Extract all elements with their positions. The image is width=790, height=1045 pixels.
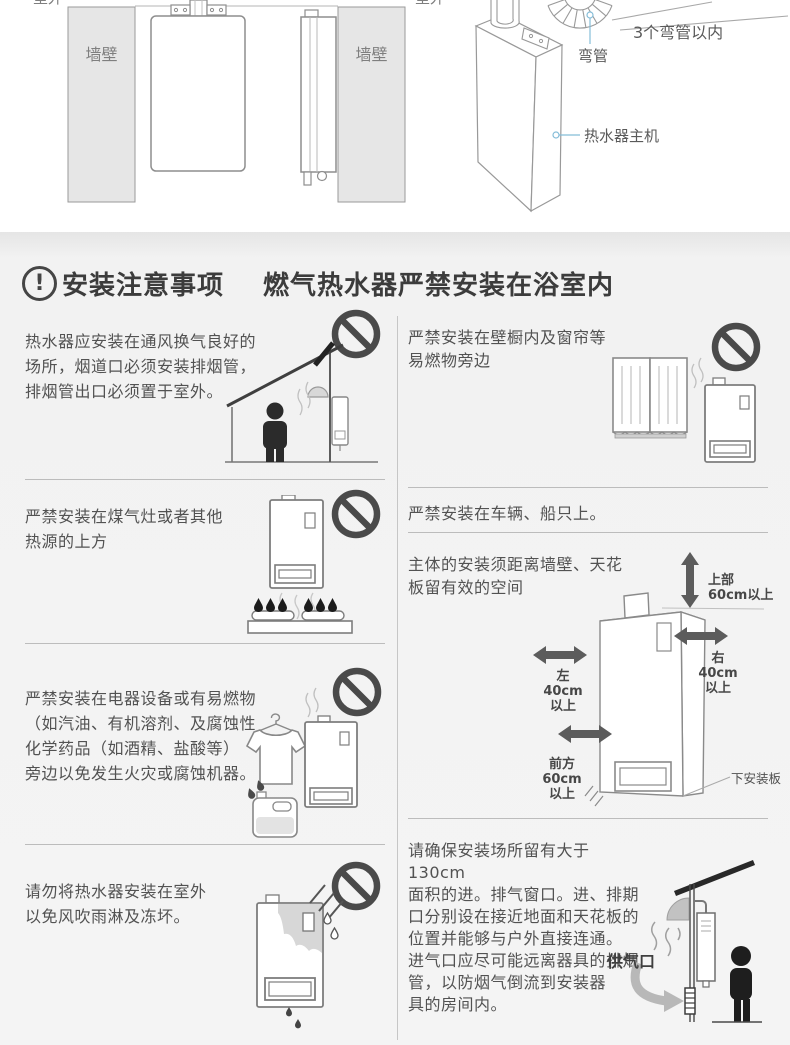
heat-waves [306,688,318,717]
precaution-text-stove: 严禁安装在煤气灶或者其他 热源的上方 [25,504,270,554]
outdoor-vent-illustration [600,835,790,1045]
outdoor-label-right: 室外 [415,0,445,7]
alert-glyph: ! [34,271,44,296]
divider-left-1 [25,479,385,480]
heater-front-view [151,0,245,171]
flue-pipe [694,901,706,913]
precaution-text-outdoor: 请勿将热水器安装在室外 以免风吹雨淋及冻坏。 [25,879,270,929]
arrow-left [533,646,587,664]
exhaust-dome [667,898,689,920]
stove-illustration [240,495,390,645]
notice-title: 安装注意事项 [62,265,224,302]
heat-waves [692,358,703,388]
precaution-text-flammables: 严禁安装在电器设备或有易燃物 （如汽油、有机溶剂、及腐蚀性 化学药品（如酒精、盐… [25,686,270,786]
wall-heater [332,397,348,451]
curtains [613,358,687,438]
precaution-text-vehicle: 严禁安装在车辆、船只上。 [408,502,648,525]
gas-stove [248,598,352,633]
drip-drops [286,1007,301,1028]
exhaust-dome [308,387,328,397]
roof [674,860,755,896]
person-silhouette [730,946,752,1022]
fuel-can [253,792,297,837]
heater [305,716,357,807]
t-shirt [247,730,305,784]
main-unit-label: 热水器主机 [584,127,659,145]
wall-side-view [338,7,405,202]
clearance-top-label: 上部 60cm以上 [708,573,773,603]
flue-cylinder [491,0,519,28]
heater [705,378,755,462]
heater [270,495,323,588]
heater-3d-box [600,593,705,796]
wall-label-front: 墙壁 [68,46,135,63]
bend-pipe-label: 弯管 [566,47,620,65]
alert-exclamation-circle-icon: ! [22,266,57,301]
house-vent-illustration [225,315,390,475]
curtain-illustration [600,320,770,480]
rain-illustration [240,855,390,1045]
ceiling-reference-line [662,608,764,609]
wall-label-side: 墙壁 [338,46,405,63]
heater-side-view [301,10,336,185]
page: 室外 室外 墙壁 墙壁 弯管 3个弯管以内 热水器主机 ! 安装注意事项 燃气热… [0,0,790,1045]
corrugated-elbow [548,0,612,28]
steam-waves [652,922,680,956]
outdoor-label-left: 室外 [33,0,63,7]
person-silhouette [263,403,287,463]
heater-3d-view [476,15,562,211]
bottom-plate-label: 下安装板 [731,768,781,787]
air-inlet-grille [685,988,695,1014]
notice-subtitle: 燃气热水器严禁安装在浴室内 [263,265,614,302]
smoke-waves [298,382,310,415]
divider-right-1 [408,487,768,488]
clearance-front-label: 前方 60cm 以上 [539,757,585,802]
gas-inlet-label: 供气口 [607,948,655,972]
clearance-right-label: 右 40cm 以上 [697,651,739,696]
column-divider [397,316,398,1040]
bend-limit-label: 3个弯管以内 [633,24,723,42]
clearance-left-label: 左 40cm 以上 [541,669,585,714]
heater [257,895,323,1007]
wall-heater [697,913,715,987]
flammables-illustration [240,660,390,845]
divider-right-2 [408,532,768,533]
wall-front-view [68,7,135,202]
arrow-top [681,552,699,608]
